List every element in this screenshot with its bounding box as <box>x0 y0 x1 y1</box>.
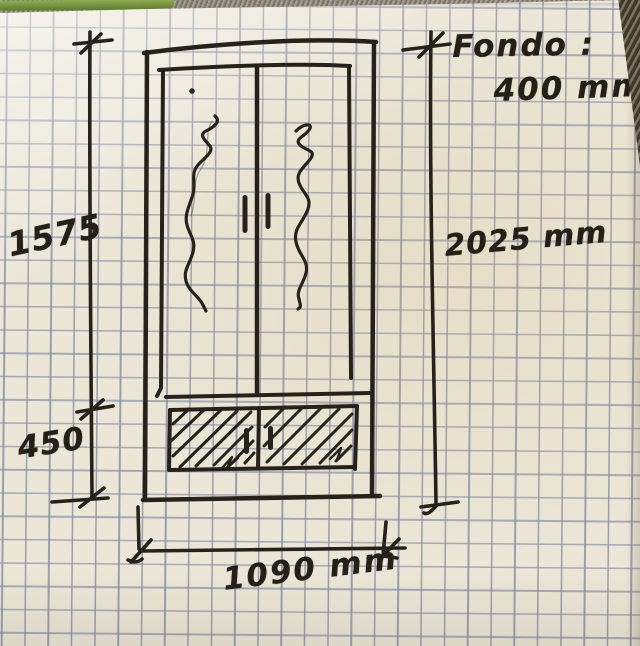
right-dimension-line <box>403 32 458 514</box>
door-handles <box>189 88 273 454</box>
graph-paper-sheet: Fondo : 400 mm 1575 2025 mm 450 1090 mm <box>0 0 640 646</box>
drawer-hatching <box>171 407 352 468</box>
ink-dot <box>189 88 195 94</box>
photo-of-sketch: Fondo : 400 mm 1575 2025 mm 450 1090 mm <box>0 0 640 646</box>
glass-reflection-squiggles <box>185 116 312 311</box>
depth-value: 400 mm <box>493 68 640 109</box>
depth-label: Fondo : <box>452 27 595 65</box>
cabinet-outer-frame <box>143 40 380 500</box>
